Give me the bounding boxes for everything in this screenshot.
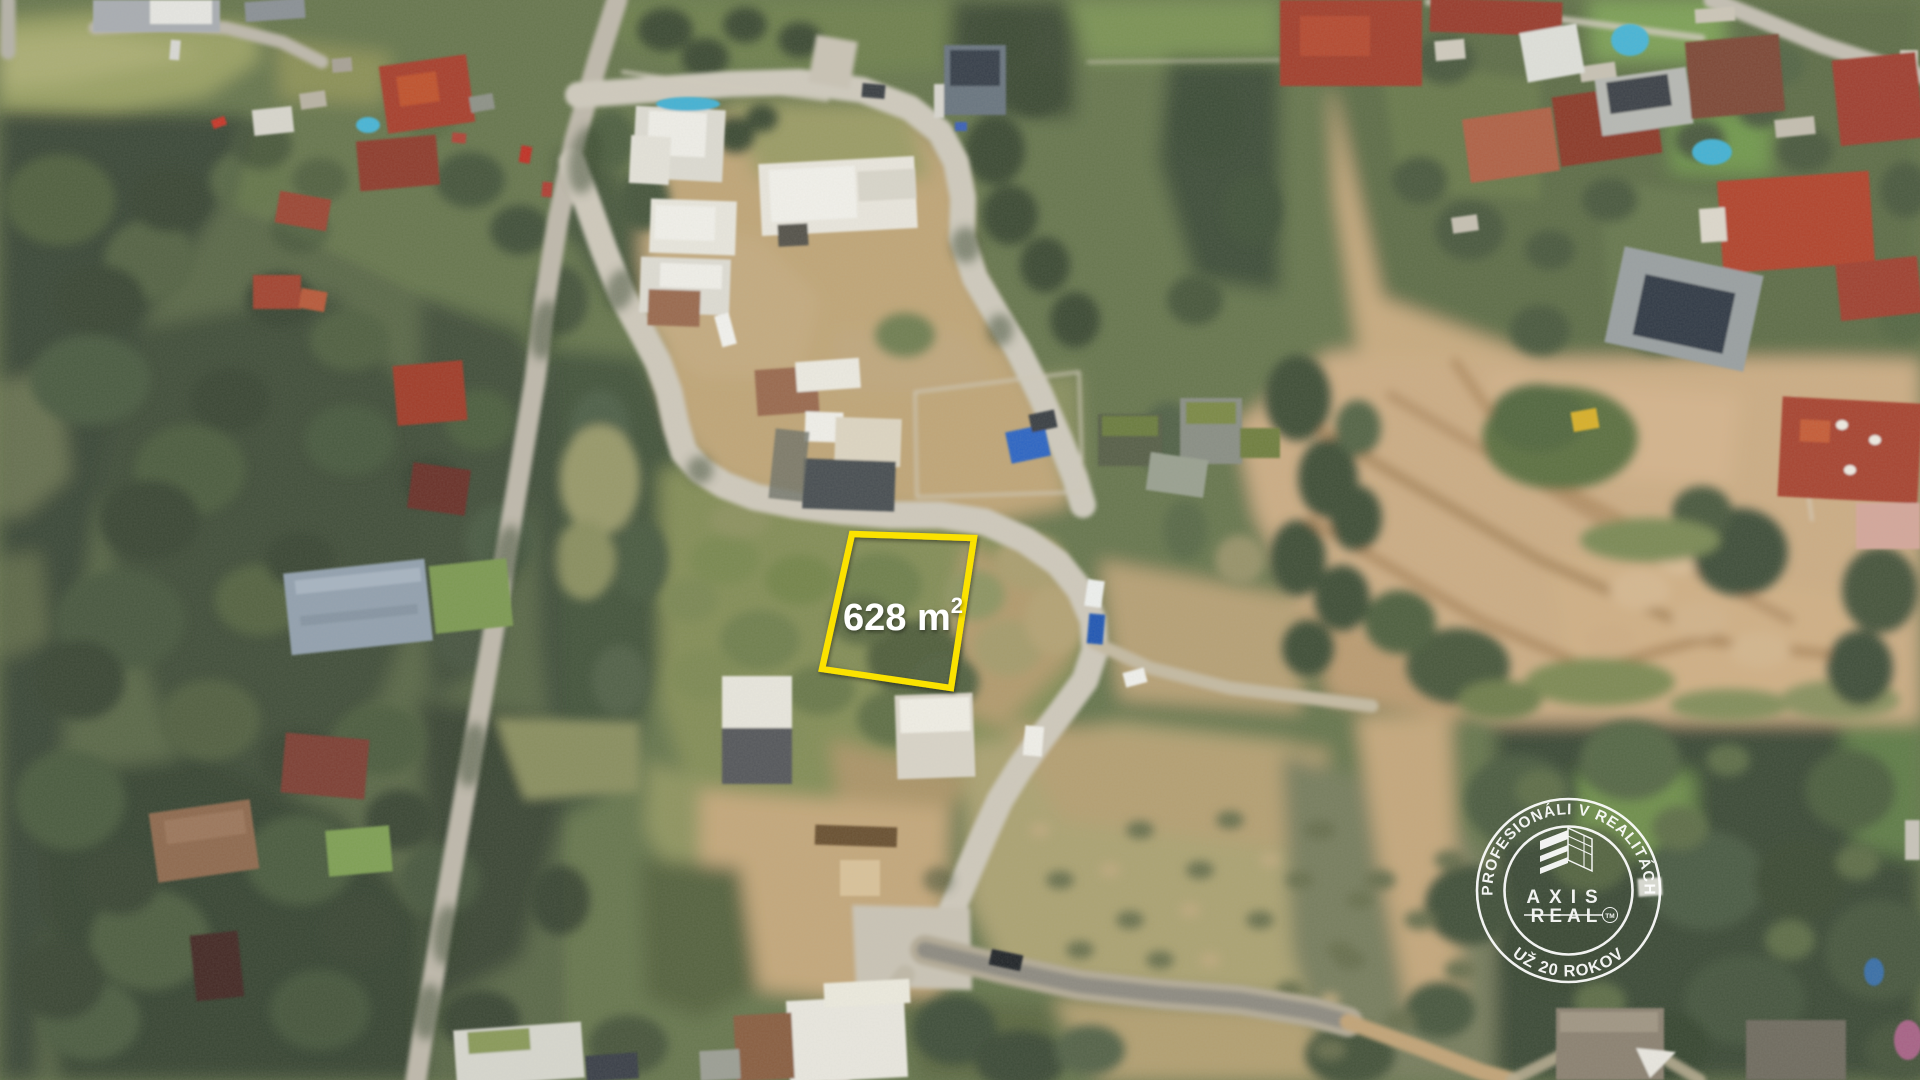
svg-text:AXIS: AXIS (1526, 887, 1606, 908)
svg-text:TM: TM (1605, 913, 1614, 920)
svg-text:628 m2: 628 m2 (843, 593, 963, 639)
svg-text:REAL: REAL (1531, 906, 1603, 927)
